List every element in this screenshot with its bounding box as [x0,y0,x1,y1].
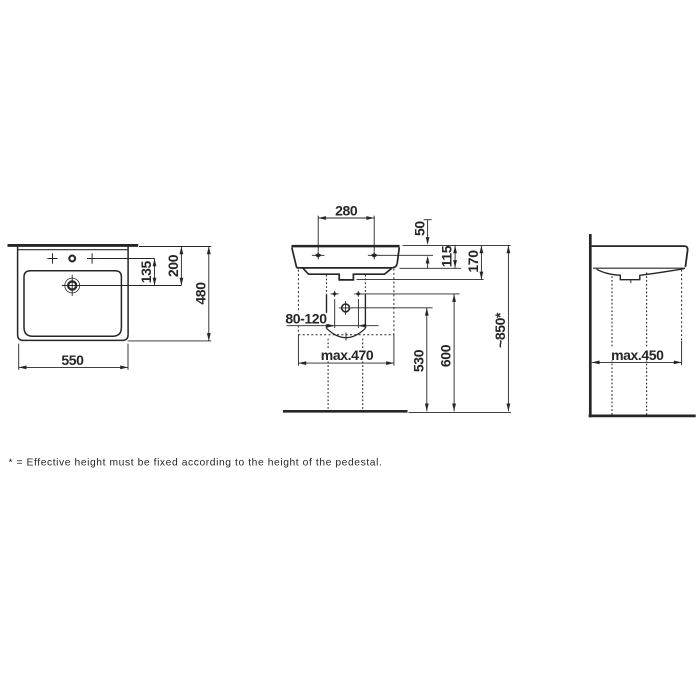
svg-text:480: 480 [192,282,208,305]
svg-text:80-120: 80-120 [285,310,327,326]
svg-text:600: 600 [438,344,454,367]
svg-text:max.470: max.470 [321,347,374,363]
svg-text:170: 170 [465,250,481,273]
svg-text:~850*: ~850* [492,312,508,348]
svg-text:* = Effective height must be f: * = Effective height must be fixed accor… [9,458,383,469]
svg-text:550: 550 [61,352,84,368]
svg-text:135: 135 [138,261,154,284]
svg-text:115: 115 [439,245,455,267]
svg-text:530: 530 [410,349,426,372]
svg-text:200: 200 [165,254,181,277]
svg-text:max.450: max.450 [611,347,664,363]
svg-text:50: 50 [411,221,427,236]
svg-text:280: 280 [335,203,358,219]
